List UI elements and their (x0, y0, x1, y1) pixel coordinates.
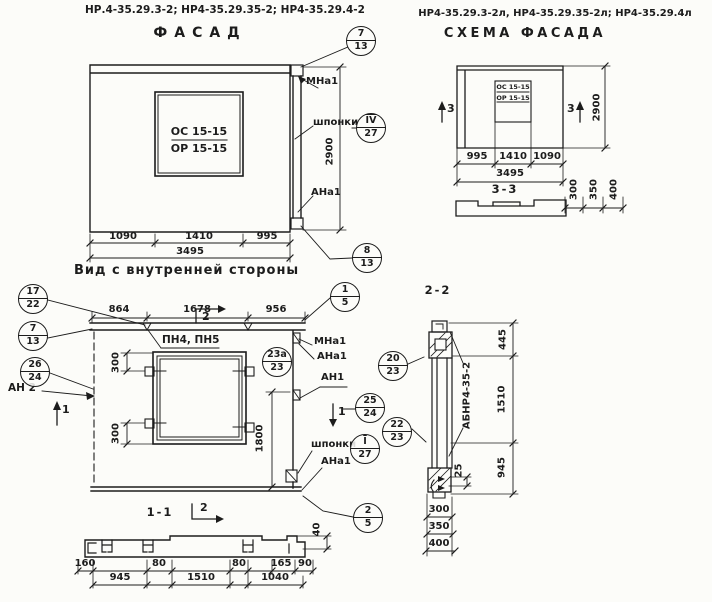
scheme-window-mark-top: ОС 15-15 (496, 84, 530, 91)
callout-26-24: 26 24 (20, 357, 50, 387)
s11-dim-1510: 1510 (179, 572, 223, 583)
callout-2-5: 2 5 (353, 503, 383, 533)
section-mark-1-right: 1 (338, 406, 346, 418)
callout-bottom: 23 (379, 366, 407, 379)
callout-I-27: I 27 (350, 434, 380, 464)
section22-title: 2-2 (423, 284, 453, 296)
callout-top: 7 (18, 322, 48, 336)
scheme-dim-total: 3495 (485, 168, 535, 179)
facade-codes: НР.4-35.29.3-2; НР4-35.29.35-2; НР4-35.2… (70, 5, 380, 16)
callout-top: 7 (346, 27, 376, 41)
section33-title: 3-3 (487, 183, 523, 195)
inner-dim-864: 864 (99, 304, 139, 315)
s11-dim-80a: 80 (146, 558, 172, 569)
section-mark-3-right: 3 (567, 103, 575, 115)
callout-23a-23: 23а 23 (262, 347, 292, 377)
section-mark-2-top: 2 (202, 311, 210, 323)
callout-7-13: 7 13 (346, 26, 376, 56)
callout-top: 23а (262, 348, 292, 362)
facade-label-ana1: АНа1 (311, 187, 341, 198)
section33-dim-350: 350 (589, 177, 600, 203)
callout-bottom: 23 (383, 432, 411, 445)
inner-label-ana1-bottom: АНа1 (321, 456, 351, 467)
callout-top: 22 (382, 418, 412, 432)
section-mark-2-bottom: 2 (200, 502, 208, 514)
callout-top: 20 (378, 352, 408, 366)
s11-dim-40: 40 (312, 521, 323, 539)
facade-dim-995: 995 (243, 231, 291, 242)
callout-bottom: 13 (19, 336, 47, 349)
facade-dim-1090: 1090 (98, 231, 148, 242)
inner-view-title: Вид с внутренней стороны (74, 264, 299, 278)
drawing-sheet: НР.4-35.29.3-2; НР4-35.29.35-2; НР4-35.2… (0, 0, 712, 602)
s11-dim-160: 160 (70, 558, 100, 569)
inner-dim-956: 956 (256, 304, 296, 315)
s11-dim-80b: 80 (226, 558, 252, 569)
callout-7-13-left: 7 13 (18, 321, 48, 351)
inner-dim-1678: 1678 (172, 304, 222, 315)
facade-dim-height: 2900 (325, 134, 336, 170)
scheme-dim-995: 995 (459, 151, 495, 162)
facade-label-mna1: МНа1 (306, 76, 338, 87)
s22-dim-1510: 1510 (497, 384, 508, 416)
s22-dim-445: 445 (498, 327, 509, 353)
callout-top: 25 (355, 394, 385, 408)
s22-dim-25: 25 (454, 463, 465, 479)
s11-dim-945: 945 (100, 572, 140, 583)
inner-dim-300-bottom: 300 (111, 421, 122, 447)
callout-bottom: 13 (353, 258, 381, 271)
section-mark-3-left: 3 (447, 103, 455, 115)
callout-bottom: 24 (21, 372, 49, 385)
inner-label-an1: АН1 (321, 372, 344, 383)
scheme-window-mark-bottom: ОР 15-15 (496, 95, 530, 102)
facade-window-mark-top: ОС 15-15 (169, 126, 229, 138)
section33-dim-300: 300 (569, 177, 580, 203)
s11-dim-165: 165 (266, 558, 296, 569)
facade-dim-total: 3495 (165, 246, 215, 257)
callout-bottom: 5 (331, 297, 359, 310)
callout-8-13: 8 13 (352, 243, 382, 273)
inner-dim-1800: 1800 (255, 422, 266, 456)
s22-dim-300: 300 (425, 504, 453, 515)
facade-title: ФАСАД (120, 26, 280, 41)
callout-bottom: 23 (263, 362, 291, 375)
callout-bottom: 22 (19, 299, 47, 312)
scheme-dim-1410: 1410 (495, 151, 531, 162)
facade-label-shponki: шпонки (313, 117, 358, 128)
section33-dim-400: 400 (609, 177, 620, 203)
callout-top: 1 (330, 283, 360, 297)
callout-top: I (350, 435, 380, 449)
callout-top: 17 (18, 285, 48, 299)
section11-title: 1-1 (140, 506, 180, 518)
s22-panel-mark: АБНР4-35-2 (462, 356, 473, 436)
callout-bottom: 27 (357, 128, 385, 141)
s22-dim-350: 350 (425, 521, 453, 532)
inner-dim-300-top: 300 (111, 350, 122, 376)
callout-top: 26 (20, 358, 50, 372)
s11-dim-90: 90 (294, 558, 316, 569)
callout-25-24: 25 24 (355, 393, 385, 423)
inner-label-ana1-top: АНа1 (317, 351, 347, 362)
inner-label-mna1: МНа1 (314, 336, 346, 347)
s22-dim-400: 400 (425, 538, 453, 549)
scheme-title: СХЕМА ФАСАДА (435, 27, 615, 41)
callout-IV-27: IV 27 (356, 113, 386, 143)
callout-1-5: 1 5 (330, 282, 360, 312)
callout-top: IV (356, 114, 386, 128)
callout-17-22: 17 22 (18, 284, 48, 314)
callout-top: 2 (353, 504, 383, 518)
facade-dim-1410: 1410 (174, 231, 224, 242)
callout-20-23: 20 23 (378, 351, 408, 381)
facade-window-mark-bottom: ОР 15-15 (169, 143, 229, 155)
scheme-dim-height: 2900 (592, 90, 603, 126)
callout-bottom: 5 (354, 518, 382, 531)
callout-bottom: 27 (351, 449, 379, 462)
scheme-dim-1090: 1090 (529, 151, 565, 162)
s11-dim-1040: 1040 (253, 572, 297, 583)
callout-bottom: 13 (347, 41, 375, 54)
scheme-codes: НР4-35.29.3-2л, НР4-35.29.35-2л; НР4-35.… (402, 8, 708, 19)
section-mark-1-left: 1 (62, 404, 70, 416)
callout-top: 8 (352, 244, 382, 258)
inner-label-pn: ПН4, ПН5 (162, 335, 219, 346)
callout-bottom: 24 (356, 408, 384, 421)
s22-dim-945: 945 (497, 455, 508, 481)
callout-22-23: 22 23 (382, 417, 412, 447)
